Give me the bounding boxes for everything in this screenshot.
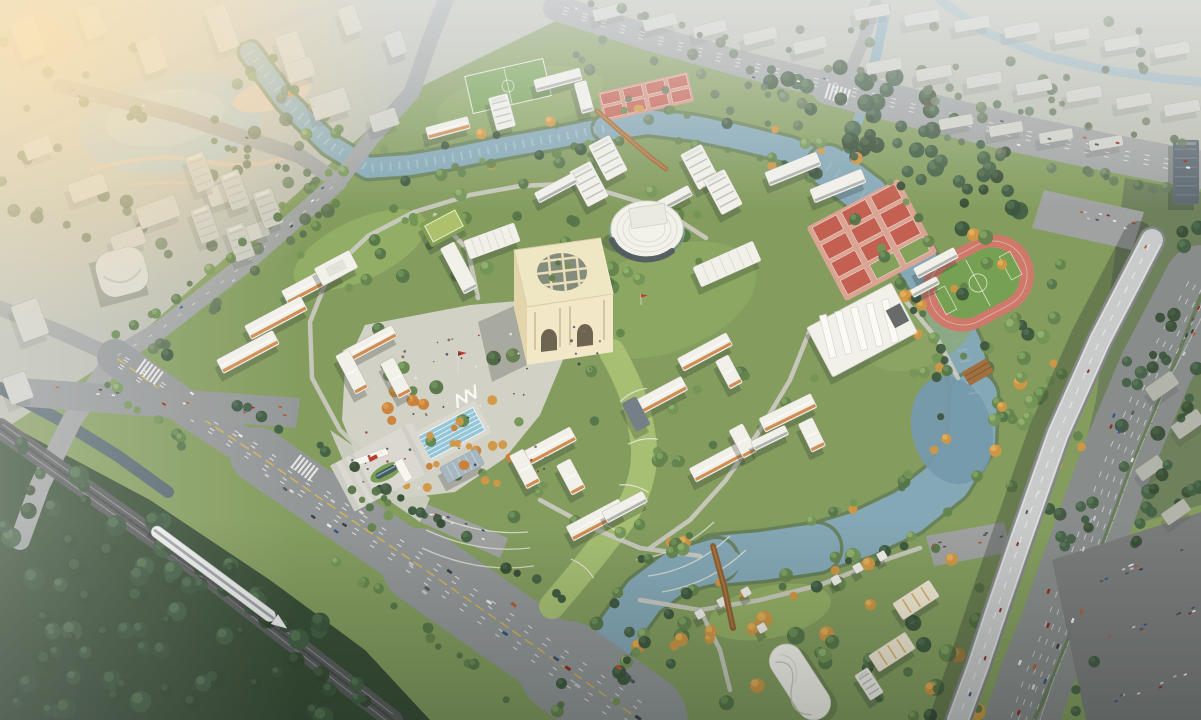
campus-aerial-rendering xyxy=(0,0,1201,720)
atmosphere-haze xyxy=(0,0,1201,720)
rendering-canvas xyxy=(0,0,1201,720)
vignette-bottom xyxy=(0,520,1201,720)
